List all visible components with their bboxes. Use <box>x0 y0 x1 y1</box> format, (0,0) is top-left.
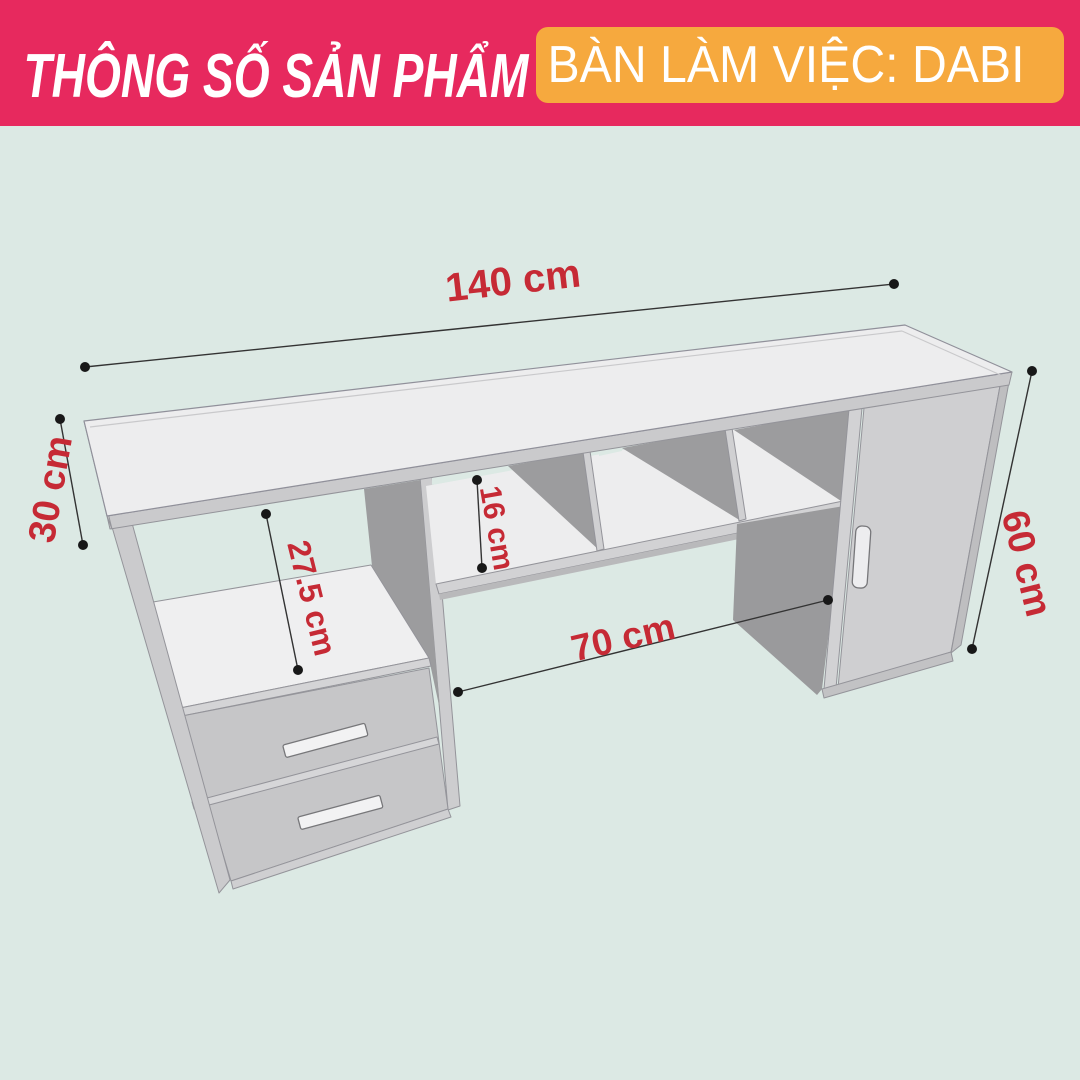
svg-text:BÀN LÀM VIỆC: DABI: BÀN LÀM VIỆC: DABI <box>548 36 1025 94</box>
svg-text:THÔNG SỐ SẢN PHẨM: THÔNG SỐ SẢN PHẨM <box>24 42 530 111</box>
